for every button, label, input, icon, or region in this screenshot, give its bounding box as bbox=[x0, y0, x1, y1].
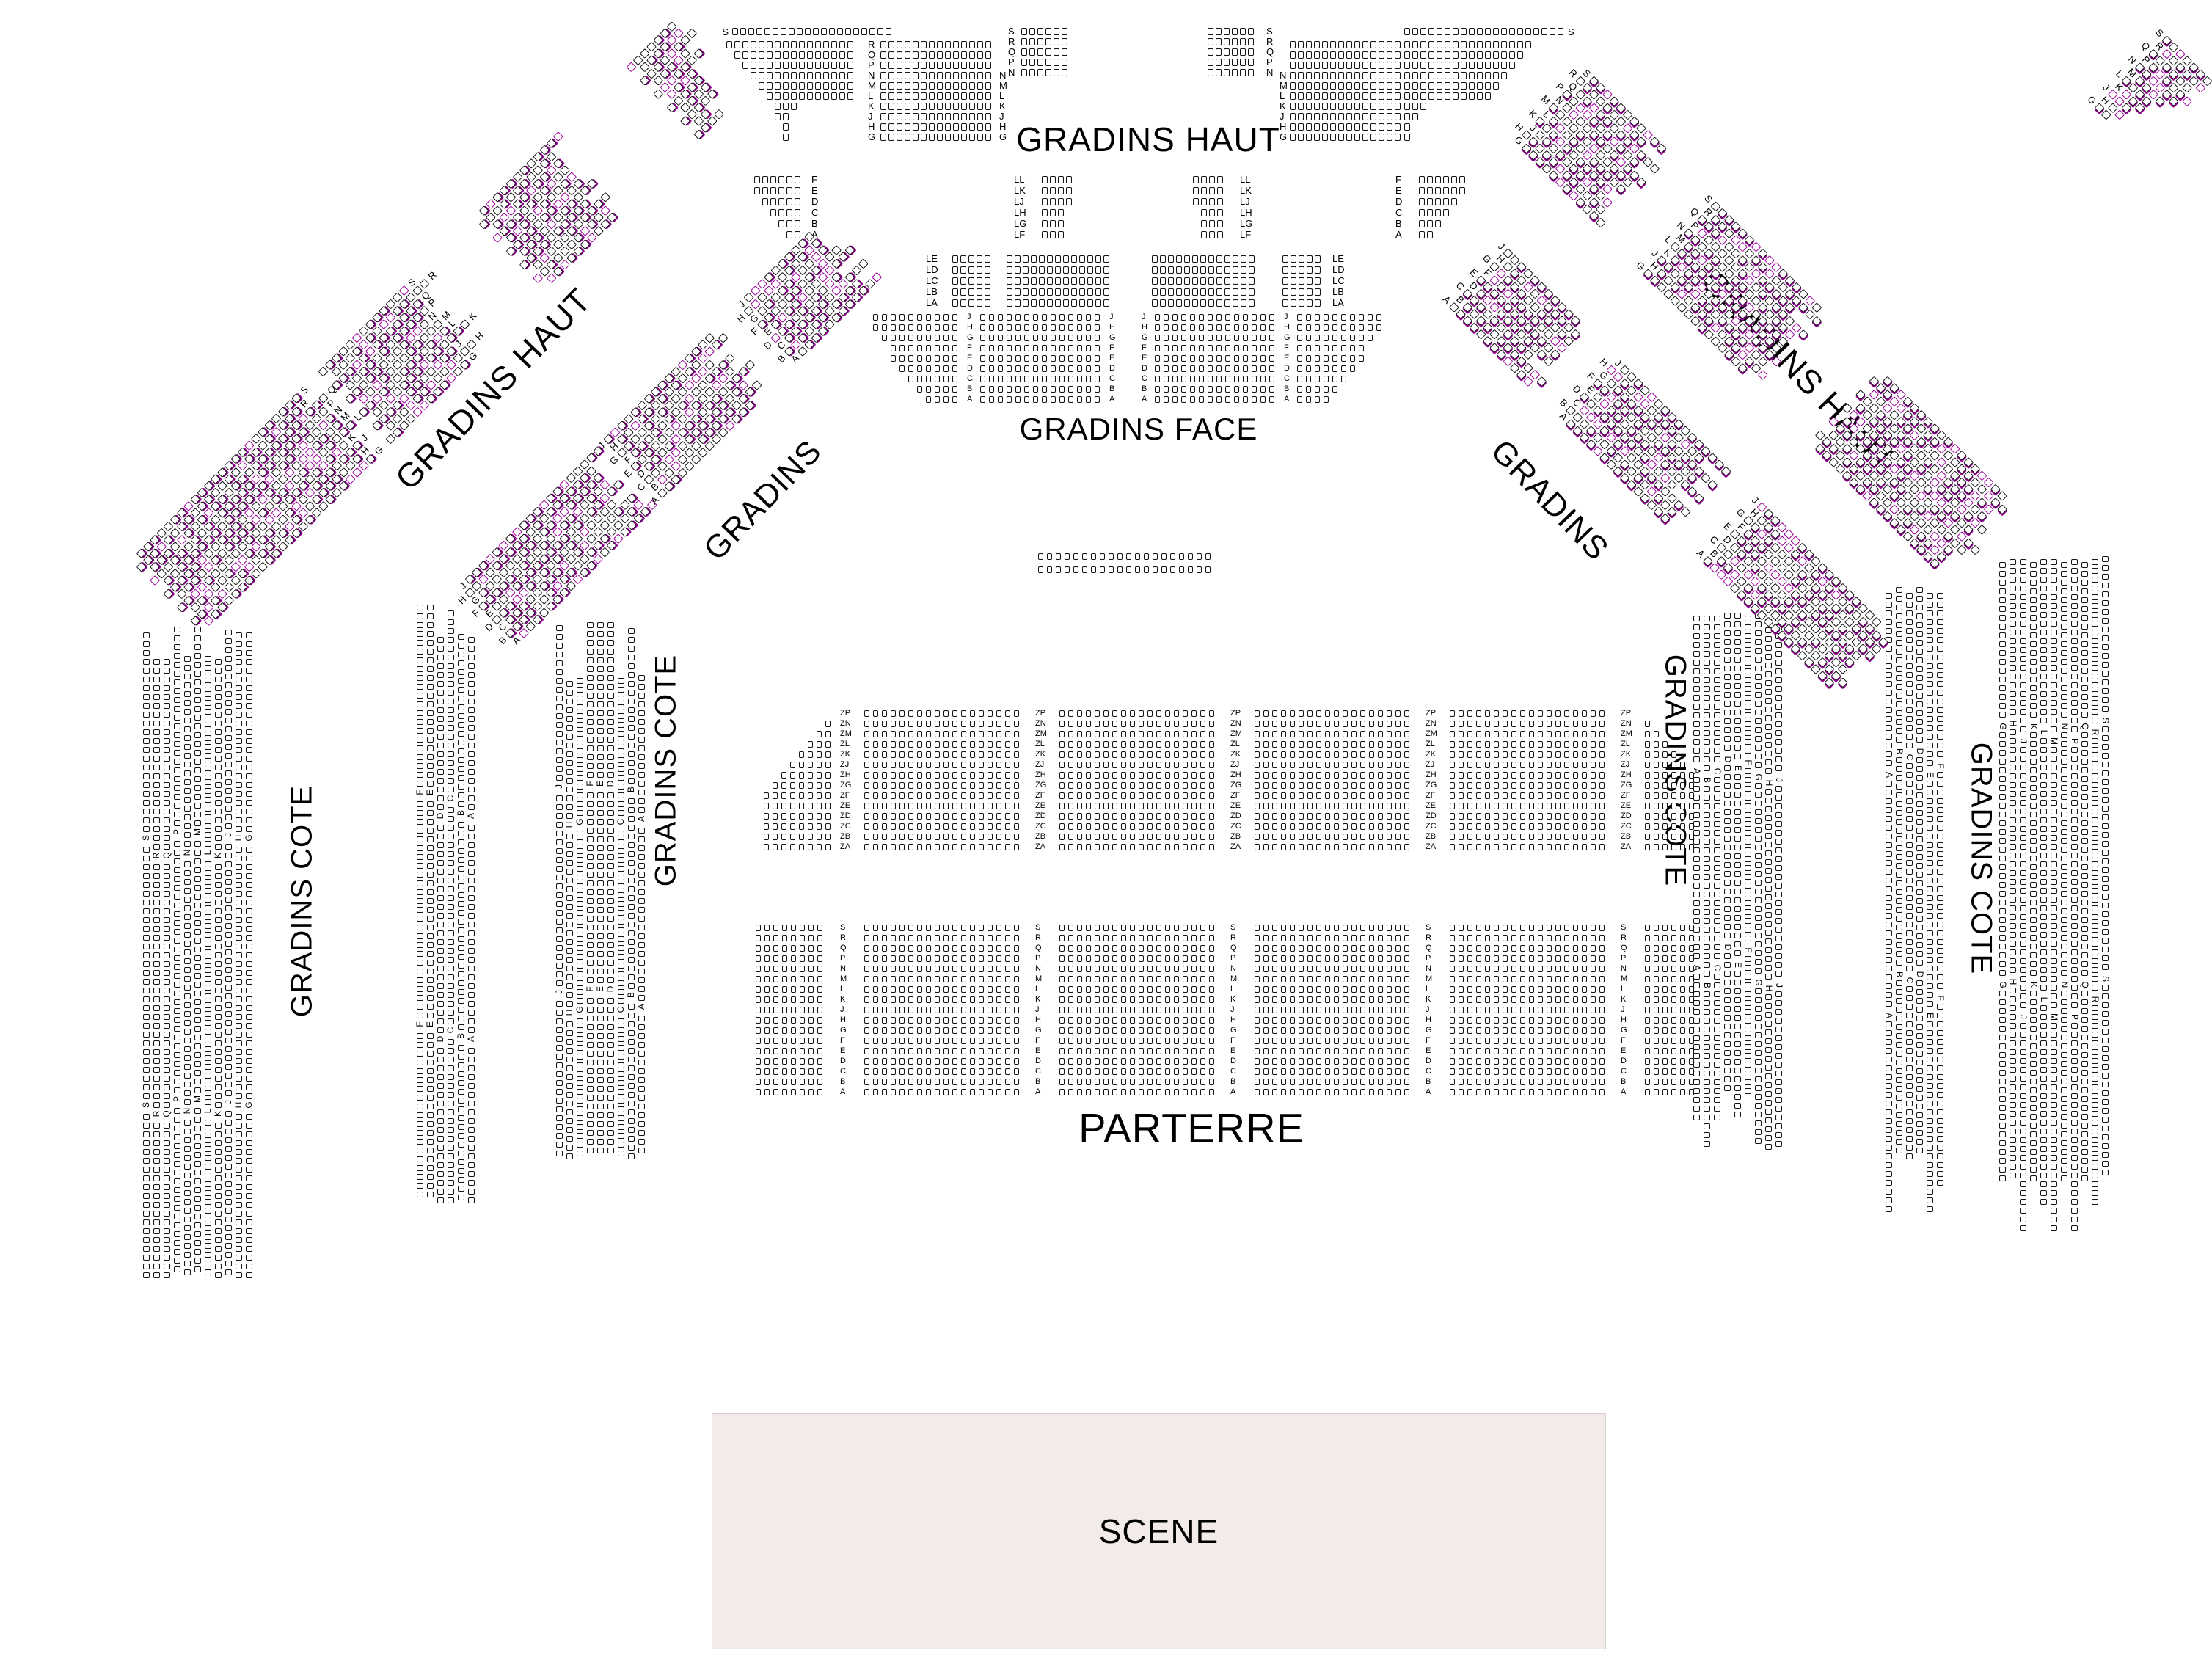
seat[interactable] bbox=[970, 1038, 975, 1044]
seat[interactable] bbox=[1582, 1068, 1587, 1075]
seat[interactable] bbox=[1645, 823, 1650, 830]
seat[interactable] bbox=[164, 1058, 170, 1064]
seat[interactable] bbox=[1503, 955, 1508, 962]
seat[interactable] bbox=[194, 706, 201, 712]
seat[interactable] bbox=[1299, 731, 1304, 737]
seat[interactable] bbox=[1130, 1079, 1135, 1085]
seat[interactable] bbox=[1503, 986, 1508, 993]
seat[interactable] bbox=[184, 709, 191, 715]
seat[interactable] bbox=[1191, 955, 1197, 962]
seat[interactable] bbox=[1599, 792, 1605, 799]
seat[interactable] bbox=[1199, 345, 1204, 351]
seat[interactable] bbox=[882, 925, 887, 931]
seat[interactable] bbox=[935, 324, 940, 331]
seat[interactable] bbox=[1437, 72, 1442, 79]
seat[interactable] bbox=[184, 976, 191, 982]
seat[interactable] bbox=[1059, 365, 1065, 372]
seat[interactable] bbox=[1591, 1027, 1596, 1034]
seat[interactable] bbox=[1269, 314, 1274, 321]
seat[interactable] bbox=[1290, 123, 1296, 131]
seat[interactable] bbox=[1599, 844, 1605, 850]
seat[interactable] bbox=[1190, 355, 1195, 362]
seat[interactable] bbox=[1139, 813, 1144, 820]
seat[interactable] bbox=[899, 945, 905, 952]
seat[interactable] bbox=[1130, 1058, 1135, 1065]
seat[interactable] bbox=[1216, 355, 1222, 362]
seat[interactable] bbox=[926, 365, 931, 372]
seat[interactable] bbox=[1047, 566, 1052, 573]
seat[interactable] bbox=[143, 1076, 150, 1082]
seat[interactable] bbox=[1139, 976, 1144, 982]
seat[interactable] bbox=[1156, 1007, 1161, 1013]
seat[interactable] bbox=[164, 1202, 170, 1208]
seat[interactable] bbox=[174, 627, 180, 632]
seat[interactable] bbox=[194, 911, 201, 917]
seat[interactable] bbox=[1121, 731, 1126, 737]
seat[interactable] bbox=[988, 1038, 993, 1044]
seat[interactable] bbox=[979, 1017, 984, 1024]
seat[interactable] bbox=[790, 813, 795, 820]
seat[interactable] bbox=[1290, 1089, 1295, 1095]
seat[interactable] bbox=[873, 1048, 878, 1054]
seat[interactable] bbox=[1234, 345, 1239, 351]
seat[interactable] bbox=[1290, 996, 1295, 1003]
seat[interactable] bbox=[1412, 92, 1418, 100]
seat[interactable] bbox=[1209, 996, 1214, 1003]
seat[interactable] bbox=[899, 823, 905, 830]
seat[interactable] bbox=[1130, 721, 1135, 727]
seat[interactable] bbox=[817, 782, 822, 789]
seat[interactable] bbox=[935, 976, 940, 982]
seat[interactable] bbox=[1360, 823, 1365, 830]
seat[interactable] bbox=[194, 750, 201, 756]
seat[interactable] bbox=[897, 62, 902, 69]
seat[interactable] bbox=[1485, 1007, 1490, 1013]
seat[interactable] bbox=[1183, 751, 1188, 758]
seat[interactable] bbox=[1299, 935, 1304, 941]
seat[interactable] bbox=[1299, 792, 1304, 799]
seat[interactable] bbox=[1139, 762, 1144, 768]
seat[interactable] bbox=[756, 1079, 761, 1085]
seat[interactable] bbox=[1529, 986, 1534, 993]
seat[interactable] bbox=[1183, 834, 1188, 840]
seat[interactable] bbox=[781, 772, 786, 779]
seat[interactable] bbox=[1662, 986, 1668, 993]
seat[interactable] bbox=[969, 113, 975, 120]
seat[interactable] bbox=[913, 134, 919, 141]
seat[interactable] bbox=[1172, 365, 1178, 372]
seat[interactable] bbox=[1378, 1089, 1383, 1095]
seat[interactable] bbox=[775, 72, 781, 79]
seat[interactable] bbox=[1325, 1027, 1330, 1034]
seat[interactable] bbox=[1095, 1048, 1100, 1054]
seat[interactable] bbox=[1087, 288, 1093, 296]
seat[interactable] bbox=[953, 92, 959, 100]
seat[interactable] bbox=[1005, 762, 1010, 768]
seat[interactable] bbox=[1139, 834, 1144, 840]
seat[interactable] bbox=[1467, 813, 1472, 820]
seat[interactable] bbox=[143, 891, 150, 897]
seat[interactable] bbox=[1343, 1038, 1348, 1044]
seat[interactable] bbox=[1255, 955, 1260, 962]
seat[interactable] bbox=[164, 900, 170, 905]
seat[interactable] bbox=[1369, 834, 1374, 840]
seat[interactable] bbox=[1209, 772, 1214, 779]
seat[interactable] bbox=[1147, 1017, 1153, 1024]
seat[interactable] bbox=[961, 1027, 966, 1034]
seat[interactable] bbox=[153, 773, 160, 779]
seat[interactable] bbox=[1547, 1089, 1552, 1095]
seat[interactable] bbox=[935, 1027, 940, 1034]
seat[interactable] bbox=[1359, 345, 1364, 351]
seat[interactable] bbox=[952, 782, 957, 789]
seat[interactable] bbox=[1325, 996, 1330, 1003]
seat[interactable] bbox=[1152, 266, 1158, 274]
seat[interactable] bbox=[174, 671, 180, 677]
seat[interactable] bbox=[1654, 823, 1659, 830]
seat[interactable] bbox=[1272, 751, 1277, 758]
seat[interactable] bbox=[1307, 803, 1313, 809]
seat[interactable] bbox=[1130, 792, 1135, 799]
seat[interactable] bbox=[143, 1123, 150, 1129]
seat[interactable] bbox=[899, 1068, 905, 1075]
seat[interactable] bbox=[164, 685, 170, 691]
seat[interactable] bbox=[1511, 834, 1516, 840]
seat[interactable] bbox=[205, 1002, 211, 1008]
seat[interactable] bbox=[1281, 986, 1286, 993]
seat[interactable] bbox=[1216, 48, 1222, 56]
seat[interactable] bbox=[1503, 1038, 1508, 1044]
seat[interactable] bbox=[1404, 803, 1409, 809]
seat[interactable] bbox=[891, 1089, 896, 1095]
seat[interactable] bbox=[143, 1202, 150, 1208]
seat[interactable] bbox=[1564, 710, 1569, 717]
seat[interactable] bbox=[1193, 176, 1199, 183]
seat[interactable] bbox=[1573, 1058, 1578, 1065]
seat[interactable] bbox=[891, 986, 896, 993]
seat[interactable] bbox=[1369, 1048, 1374, 1054]
seat[interactable] bbox=[1200, 1089, 1205, 1095]
seat[interactable] bbox=[1645, 925, 1650, 931]
seat[interactable] bbox=[1014, 925, 1019, 931]
seat[interactable] bbox=[184, 806, 191, 812]
seat[interactable] bbox=[1033, 355, 1038, 362]
seat[interactable] bbox=[1165, 1027, 1170, 1034]
seat[interactable] bbox=[1316, 762, 1321, 768]
seat[interactable] bbox=[184, 1064, 191, 1070]
seat[interactable] bbox=[1485, 741, 1490, 748]
seat[interactable] bbox=[1453, 51, 1459, 59]
seat[interactable] bbox=[937, 41, 943, 48]
seat[interactable] bbox=[1095, 721, 1100, 727]
seat[interactable] bbox=[1068, 710, 1073, 717]
seat[interactable] bbox=[1077, 986, 1082, 993]
seat[interactable] bbox=[839, 51, 845, 59]
seat[interactable] bbox=[1316, 1089, 1321, 1095]
seat[interactable] bbox=[979, 772, 984, 779]
seat[interactable] bbox=[1059, 355, 1065, 362]
seat[interactable] bbox=[961, 1038, 966, 1044]
seat[interactable] bbox=[1079, 277, 1085, 285]
seat[interactable] bbox=[985, 103, 991, 110]
seat[interactable] bbox=[1056, 553, 1061, 560]
seat[interactable] bbox=[1007, 335, 1012, 341]
seat[interactable] bbox=[943, 925, 949, 931]
seat[interactable] bbox=[773, 1079, 778, 1085]
seat[interactable] bbox=[1662, 925, 1668, 931]
seat[interactable] bbox=[1322, 41, 1328, 48]
seat[interactable] bbox=[205, 1225, 211, 1231]
seat[interactable] bbox=[1591, 1017, 1596, 1024]
seat[interactable] bbox=[184, 691, 191, 697]
seat[interactable] bbox=[1395, 1017, 1401, 1024]
seat[interactable] bbox=[882, 986, 887, 993]
seat[interactable] bbox=[905, 123, 910, 131]
seat[interactable] bbox=[1334, 823, 1339, 830]
seat[interactable] bbox=[1564, 772, 1569, 779]
seat[interactable] bbox=[1529, 1079, 1534, 1085]
seat[interactable] bbox=[143, 1140, 150, 1146]
seat[interactable] bbox=[943, 1038, 949, 1044]
seat[interactable] bbox=[1216, 288, 1222, 296]
seat[interactable] bbox=[1420, 103, 1426, 110]
seat[interactable] bbox=[985, 82, 991, 90]
seat[interactable] bbox=[194, 1079, 201, 1084]
seat[interactable] bbox=[799, 751, 804, 758]
seat[interactable] bbox=[174, 1222, 180, 1228]
seat[interactable] bbox=[783, 72, 789, 79]
seat[interactable] bbox=[1216, 324, 1222, 331]
seat[interactable] bbox=[943, 762, 949, 768]
seat[interactable] bbox=[1263, 1007, 1269, 1013]
seat[interactable] bbox=[1263, 772, 1269, 779]
seat[interactable] bbox=[1168, 277, 1174, 285]
seat[interactable] bbox=[1263, 1027, 1269, 1034]
seat[interactable] bbox=[1529, 731, 1534, 737]
seat[interactable] bbox=[1200, 762, 1205, 768]
seat[interactable] bbox=[1547, 751, 1552, 758]
seat[interactable] bbox=[1573, 844, 1578, 850]
seat[interactable] bbox=[1307, 823, 1313, 830]
seat[interactable] bbox=[897, 51, 902, 59]
seat[interactable] bbox=[1316, 996, 1321, 1003]
seat[interactable] bbox=[1172, 376, 1178, 382]
seat[interactable] bbox=[1395, 721, 1401, 727]
seat[interactable] bbox=[1183, 823, 1188, 830]
seat[interactable] bbox=[1299, 762, 1304, 768]
seat[interactable] bbox=[1529, 966, 1534, 972]
seat[interactable] bbox=[935, 772, 940, 779]
seat[interactable] bbox=[143, 1114, 150, 1120]
seat[interactable] bbox=[1494, 1079, 1499, 1085]
seat[interactable] bbox=[1299, 986, 1304, 993]
seat[interactable] bbox=[1351, 935, 1357, 941]
seat[interactable] bbox=[1564, 955, 1569, 962]
seat[interactable] bbox=[1059, 335, 1065, 341]
seat[interactable] bbox=[988, 976, 993, 982]
seat[interactable] bbox=[1599, 935, 1605, 941]
seat[interactable] bbox=[1121, 1068, 1126, 1075]
seat[interactable] bbox=[205, 897, 211, 903]
seat[interactable] bbox=[1582, 1048, 1587, 1054]
seat[interactable] bbox=[1378, 741, 1383, 748]
seat[interactable] bbox=[1103, 762, 1109, 768]
seat[interactable] bbox=[184, 1261, 191, 1266]
seat[interactable] bbox=[1200, 1058, 1205, 1065]
seat[interactable] bbox=[1191, 945, 1197, 952]
seat[interactable] bbox=[1529, 955, 1534, 962]
seat[interactable] bbox=[1494, 731, 1499, 737]
seat[interactable] bbox=[943, 751, 949, 758]
seat[interactable] bbox=[1217, 220, 1223, 227]
seat[interactable] bbox=[1077, 813, 1082, 820]
seat[interactable] bbox=[1325, 721, 1330, 727]
seat[interactable] bbox=[1680, 1068, 1685, 1075]
seat[interactable] bbox=[926, 376, 931, 382]
seat[interactable] bbox=[1511, 1048, 1516, 1054]
seat[interactable] bbox=[1538, 721, 1543, 727]
seat[interactable] bbox=[970, 751, 975, 758]
seat[interactable] bbox=[1209, 844, 1214, 850]
seat[interactable] bbox=[1130, 935, 1135, 941]
seat[interactable] bbox=[1599, 1058, 1605, 1065]
seat[interactable] bbox=[791, 1017, 796, 1024]
seat[interactable] bbox=[184, 1038, 191, 1043]
seat[interactable] bbox=[1376, 314, 1381, 321]
seat[interactable] bbox=[1272, 834, 1277, 840]
seat[interactable] bbox=[1378, 834, 1383, 840]
seat[interactable] bbox=[1176, 288, 1182, 296]
seat[interactable] bbox=[1103, 834, 1109, 840]
seat[interactable] bbox=[1338, 103, 1344, 110]
seat[interactable] bbox=[1156, 1017, 1161, 1024]
seat[interactable] bbox=[1058, 176, 1064, 183]
seat[interactable] bbox=[988, 772, 993, 779]
seat[interactable] bbox=[1316, 710, 1321, 717]
seat[interactable] bbox=[1241, 288, 1246, 296]
seat[interactable] bbox=[1477, 51, 1483, 59]
seat[interactable] bbox=[764, 976, 770, 982]
seat[interactable] bbox=[1165, 834, 1170, 840]
seat[interactable] bbox=[1051, 365, 1056, 372]
seat[interactable] bbox=[1645, 1017, 1650, 1024]
seat[interactable] bbox=[205, 1120, 211, 1126]
seat[interactable] bbox=[786, 198, 792, 205]
seat[interactable] bbox=[194, 1205, 201, 1211]
seat[interactable] bbox=[1503, 721, 1508, 727]
seat[interactable] bbox=[1582, 996, 1587, 1003]
seat[interactable] bbox=[1501, 51, 1507, 59]
seat[interactable] bbox=[1538, 1038, 1543, 1044]
seat[interactable] bbox=[1511, 751, 1516, 758]
seat[interactable] bbox=[795, 220, 800, 227]
seat[interactable] bbox=[1476, 813, 1481, 820]
seat[interactable] bbox=[1404, 731, 1409, 737]
seat[interactable] bbox=[184, 832, 191, 838]
seat[interactable] bbox=[1299, 751, 1304, 758]
seat[interactable] bbox=[799, 41, 805, 48]
seat[interactable] bbox=[1281, 782, 1286, 789]
seat[interactable] bbox=[970, 823, 975, 830]
seat[interactable] bbox=[1200, 772, 1205, 779]
seat[interactable] bbox=[1520, 772, 1525, 779]
seat[interactable] bbox=[970, 955, 975, 962]
seat[interactable] bbox=[1079, 288, 1085, 296]
seat[interactable] bbox=[1282, 288, 1288, 296]
seat[interactable] bbox=[1450, 803, 1455, 809]
seat[interactable] bbox=[882, 1079, 887, 1085]
seat[interactable] bbox=[1343, 1058, 1348, 1065]
seat[interactable] bbox=[952, 299, 958, 307]
seat[interactable] bbox=[174, 1070, 180, 1076]
seat[interactable] bbox=[891, 1027, 896, 1034]
seat[interactable] bbox=[1095, 976, 1100, 982]
seat[interactable] bbox=[1005, 955, 1010, 962]
seat[interactable] bbox=[1007, 314, 1012, 321]
seat[interactable] bbox=[1172, 345, 1178, 351]
seat[interactable] bbox=[1369, 772, 1374, 779]
seat[interactable] bbox=[952, 1089, 957, 1095]
seat[interactable] bbox=[899, 772, 905, 779]
seat[interactable] bbox=[1332, 355, 1337, 362]
seat[interactable] bbox=[864, 1079, 869, 1085]
seat[interactable] bbox=[1299, 1079, 1304, 1085]
seat[interactable] bbox=[1156, 966, 1161, 972]
seat[interactable] bbox=[952, 751, 957, 758]
seat[interactable] bbox=[184, 1046, 191, 1052]
seat[interactable] bbox=[1387, 51, 1392, 59]
seat[interactable] bbox=[184, 1164, 191, 1170]
seat[interactable] bbox=[891, 1058, 896, 1065]
seat[interactable] bbox=[164, 979, 170, 985]
seat[interactable] bbox=[1232, 69, 1238, 76]
seat[interactable] bbox=[1068, 844, 1073, 850]
seat[interactable] bbox=[980, 365, 985, 372]
seat[interactable] bbox=[1369, 710, 1374, 717]
seat[interactable] bbox=[1298, 103, 1304, 110]
seat[interactable] bbox=[985, 113, 991, 120]
seat[interactable] bbox=[164, 721, 170, 726]
seat[interactable] bbox=[880, 113, 886, 120]
seat[interactable] bbox=[1156, 834, 1161, 840]
seat[interactable] bbox=[1555, 813, 1561, 820]
seat[interactable] bbox=[143, 756, 150, 762]
seat[interactable] bbox=[970, 986, 975, 993]
seat[interactable] bbox=[1172, 396, 1178, 403]
seat[interactable] bbox=[1183, 925, 1188, 931]
seat[interactable] bbox=[873, 813, 878, 820]
seat[interactable] bbox=[1079, 255, 1085, 263]
seat[interactable] bbox=[143, 817, 150, 823]
seat[interactable] bbox=[1369, 955, 1374, 962]
seat[interactable] bbox=[1395, 134, 1401, 141]
seat[interactable] bbox=[782, 955, 787, 962]
seat[interactable] bbox=[926, 772, 931, 779]
seat[interactable] bbox=[1564, 803, 1569, 809]
seat[interactable] bbox=[1095, 266, 1101, 274]
seat[interactable] bbox=[952, 710, 957, 717]
seat[interactable] bbox=[807, 51, 813, 59]
seat[interactable] bbox=[808, 1068, 814, 1075]
seat[interactable] bbox=[164, 1237, 170, 1243]
seat[interactable] bbox=[1073, 553, 1078, 560]
seat[interactable] bbox=[1181, 345, 1186, 351]
seat[interactable] bbox=[908, 945, 913, 952]
seat[interactable] bbox=[756, 996, 761, 1003]
seat[interactable] bbox=[1334, 945, 1339, 952]
seat[interactable] bbox=[194, 850, 201, 856]
seat[interactable] bbox=[1272, 935, 1277, 941]
